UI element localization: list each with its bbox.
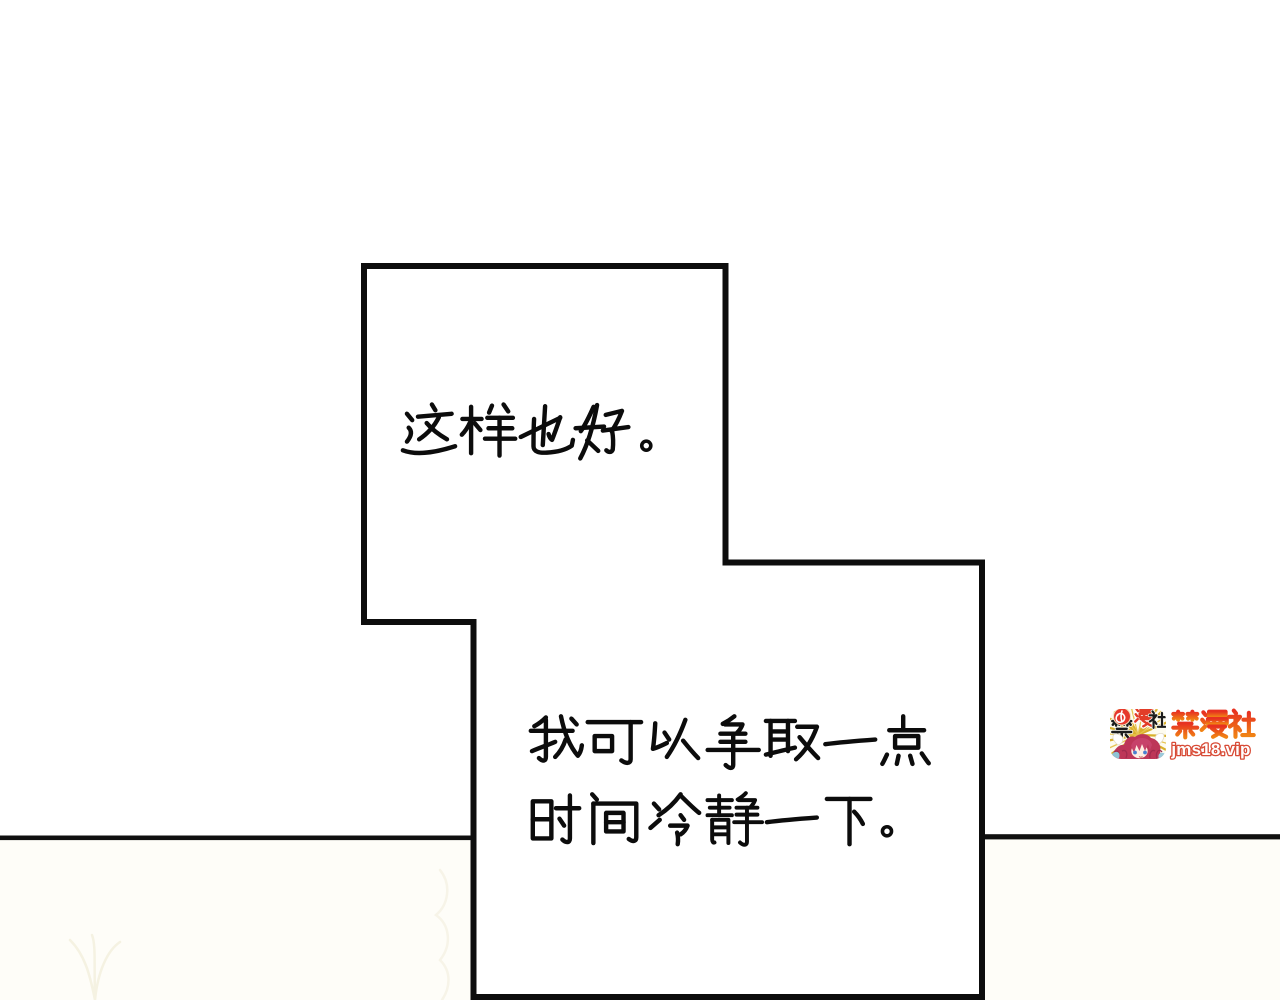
svg-text:jms18.vip: jms18.vip [1170,740,1250,759]
